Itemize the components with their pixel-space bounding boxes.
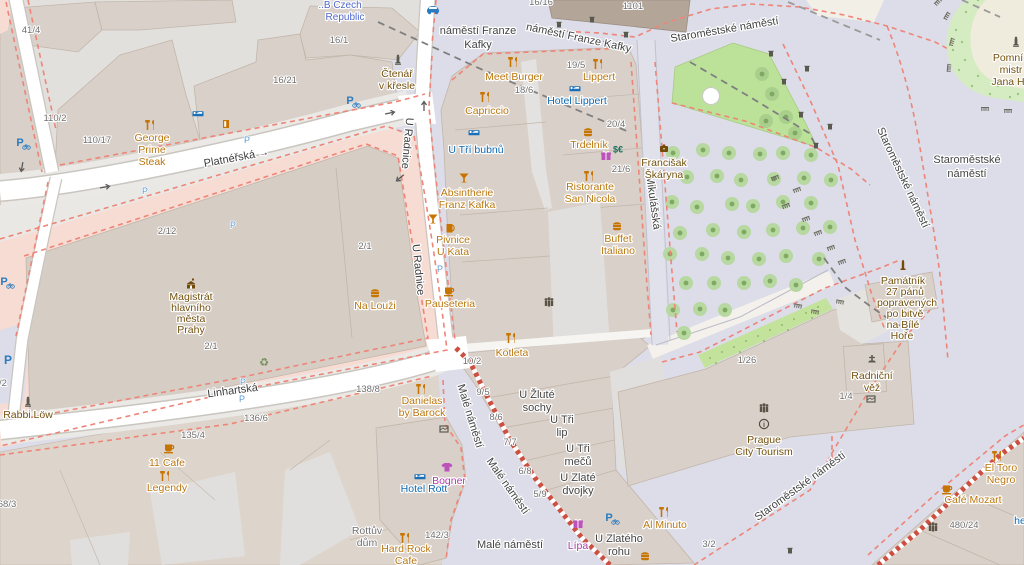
svg-text:480/24: 480/24	[949, 520, 978, 531]
svg-text:2/12: 2/12	[158, 226, 177, 237]
svg-text:10/2: 10/2	[463, 356, 482, 367]
svg-text:16/16: 16/16	[529, 0, 553, 8]
svg-text:Café Mozart: Café Mozart	[944, 494, 1001, 506]
svg-text:City Tourism: City Tourism	[735, 446, 793, 458]
svg-text:20/4: 20/4	[607, 119, 626, 130]
svg-text:lip: lip	[556, 427, 567, 439]
svg-text:Na Louži: Na Louži	[354, 300, 395, 312]
svg-text:Staroměstské: Staroměstské	[933, 154, 1000, 166]
svg-text:1101: 1101	[623, 1, 643, 12]
svg-text:138/8: 138/8	[356, 384, 380, 395]
svg-text:Danielas: Danielas	[402, 395, 443, 407]
svg-text:P: P	[244, 135, 250, 145]
svg-text:George: George	[134, 132, 169, 144]
svg-text:Capriccio: Capriccio	[465, 105, 509, 117]
svg-text:rohu: rohu	[608, 546, 630, 558]
svg-text:Buffet: Buffet	[604, 233, 631, 245]
svg-text:Italiano: Italiano	[601, 245, 635, 257]
svg-text:Prague: Prague	[747, 434, 781, 446]
svg-text:věž: věž	[864, 382, 880, 394]
svg-text:1/26: 1/26	[738, 355, 757, 366]
svg-text:1/4: 1/4	[839, 391, 852, 402]
svg-text:Cafe: Cafe	[395, 555, 417, 565]
svg-text:mečů: mečů	[565, 456, 592, 468]
svg-text:sochy: sochy	[523, 402, 552, 414]
svg-text:P: P	[142, 186, 148, 196]
svg-text:Trdelník: Trdelník	[570, 139, 608, 151]
svg-text:náměstí: náměstí	[947, 168, 986, 180]
svg-text:he: he	[1014, 515, 1024, 527]
svg-text:41/4: 41/4	[22, 25, 41, 36]
svg-text:Rabbi Löw: Rabbi Löw	[3, 409, 53, 421]
svg-text:Rottův: Rottův	[352, 525, 383, 537]
svg-text:U Zlatého: U Zlatého	[595, 533, 643, 545]
svg-text:Hard Rock: Hard Rock	[381, 543, 431, 555]
svg-text:19/5: 19/5	[567, 60, 586, 71]
svg-text:San Nicola: San Nicola	[565, 193, 616, 205]
svg-text:2/1: 2/1	[358, 241, 371, 252]
svg-text:3/2: 3/2	[702, 539, 715, 550]
svg-text:Čtenář: Čtenář	[381, 67, 413, 80]
svg-text:Kafky: Kafky	[464, 39, 492, 51]
svg-text:9/5: 9/5	[476, 387, 489, 398]
svg-text:5/9: 5/9	[533, 489, 546, 500]
svg-text:Meet Burger: Meet Burger	[485, 71, 543, 83]
svg-text:Jana H: Jana H	[991, 76, 1024, 88]
svg-text:Hotel Rott: Hotel Rott	[401, 483, 448, 495]
svg-text:Malé náměstí: Malé náměstí	[477, 539, 543, 551]
svg-text:Pivnice: Pivnice	[436, 234, 470, 246]
svg-text:U Kata: U Kata	[437, 246, 469, 258]
svg-text:P: P	[230, 220, 236, 230]
svg-text:U Tří bubnů: U Tří bubnů	[448, 144, 503, 156]
svg-text:Radniční: Radniční	[851, 370, 893, 382]
svg-text:U Zlaté: U Zlaté	[560, 472, 595, 484]
svg-text:v křesle: v křesle	[379, 80, 415, 92]
svg-text:2/1: 2/1	[204, 341, 217, 352]
svg-text:P: P	[437, 264, 443, 274]
svg-text:8/6: 8/6	[489, 412, 502, 423]
svg-text:Pomní: Pomní	[993, 52, 1023, 64]
svg-text:U Tři: U Tři	[550, 414, 574, 426]
svg-text:21/6: 21/6	[612, 164, 631, 175]
svg-text:68/3: 68/3	[0, 499, 16, 510]
svg-text:Legendy: Legendy	[147, 482, 188, 494]
svg-text:Lípa: Lípa	[568, 540, 589, 552]
svg-text:/2: /2	[0, 378, 7, 389]
svg-text:142/3: 142/3	[425, 530, 449, 541]
svg-text:Kotleta: Kotleta	[496, 347, 529, 359]
svg-text:11 Cafe: 11 Cafe	[149, 457, 185, 469]
svg-text:136/6: 136/6	[244, 413, 268, 424]
svg-text:Negro: Negro	[987, 474, 1016, 486]
svg-text:Lippert: Lippert	[583, 71, 615, 83]
svg-text:Steak: Steak	[139, 156, 167, 168]
svg-text:7/7: 7/7	[503, 437, 516, 448]
svg-text:Hoře: Hoře	[891, 330, 914, 342]
svg-text:Prahy: Prahy	[177, 324, 205, 336]
svg-text:Ristorante: Ristorante	[566, 181, 614, 193]
svg-text:135/4: 135/4	[181, 430, 205, 441]
svg-text:Franz Kafka: Franz Kafka	[439, 199, 496, 211]
svg-text:El Toro: El Toro	[985, 462, 1018, 474]
svg-text:Republic: Republic	[326, 12, 365, 23]
svg-text:by Barock: by Barock	[399, 407, 446, 419]
svg-text:Škáryna: Škáryna	[645, 168, 684, 181]
svg-text:dvojky: dvojky	[562, 485, 594, 497]
svg-text:Hotel Lippert: Hotel Lippert	[547, 95, 607, 107]
svg-text:110/17: 110/17	[83, 135, 111, 146]
svg-text:18/6: 18/6	[515, 85, 534, 96]
svg-text:16/1: 16/1	[330, 35, 349, 46]
svg-text:6/8: 6/8	[518, 466, 531, 477]
svg-text:mistr: mistr	[1000, 64, 1023, 76]
svg-text:110/2: 110/2	[43, 113, 66, 124]
svg-text:Al Minuto: Al Minuto	[643, 519, 687, 531]
svg-text:dům: dům	[357, 537, 378, 549]
svg-text:16/21: 16/21	[273, 75, 297, 86]
svg-text:Prime: Prime	[138, 144, 166, 156]
svg-text:Francišak: Francišak	[641, 157, 687, 169]
svg-text:..B Czech: ..B Czech	[318, 0, 361, 11]
svg-text:U Tři: U Tři	[566, 443, 590, 455]
svg-text:U Žluté: U Žluté	[519, 388, 554, 401]
svg-text:Pauseteria: Pauseteria	[425, 298, 475, 310]
svg-text:Absintherie: Absintherie	[441, 187, 494, 199]
svg-text:náměstí Franze: náměstí Franze	[440, 25, 516, 37]
